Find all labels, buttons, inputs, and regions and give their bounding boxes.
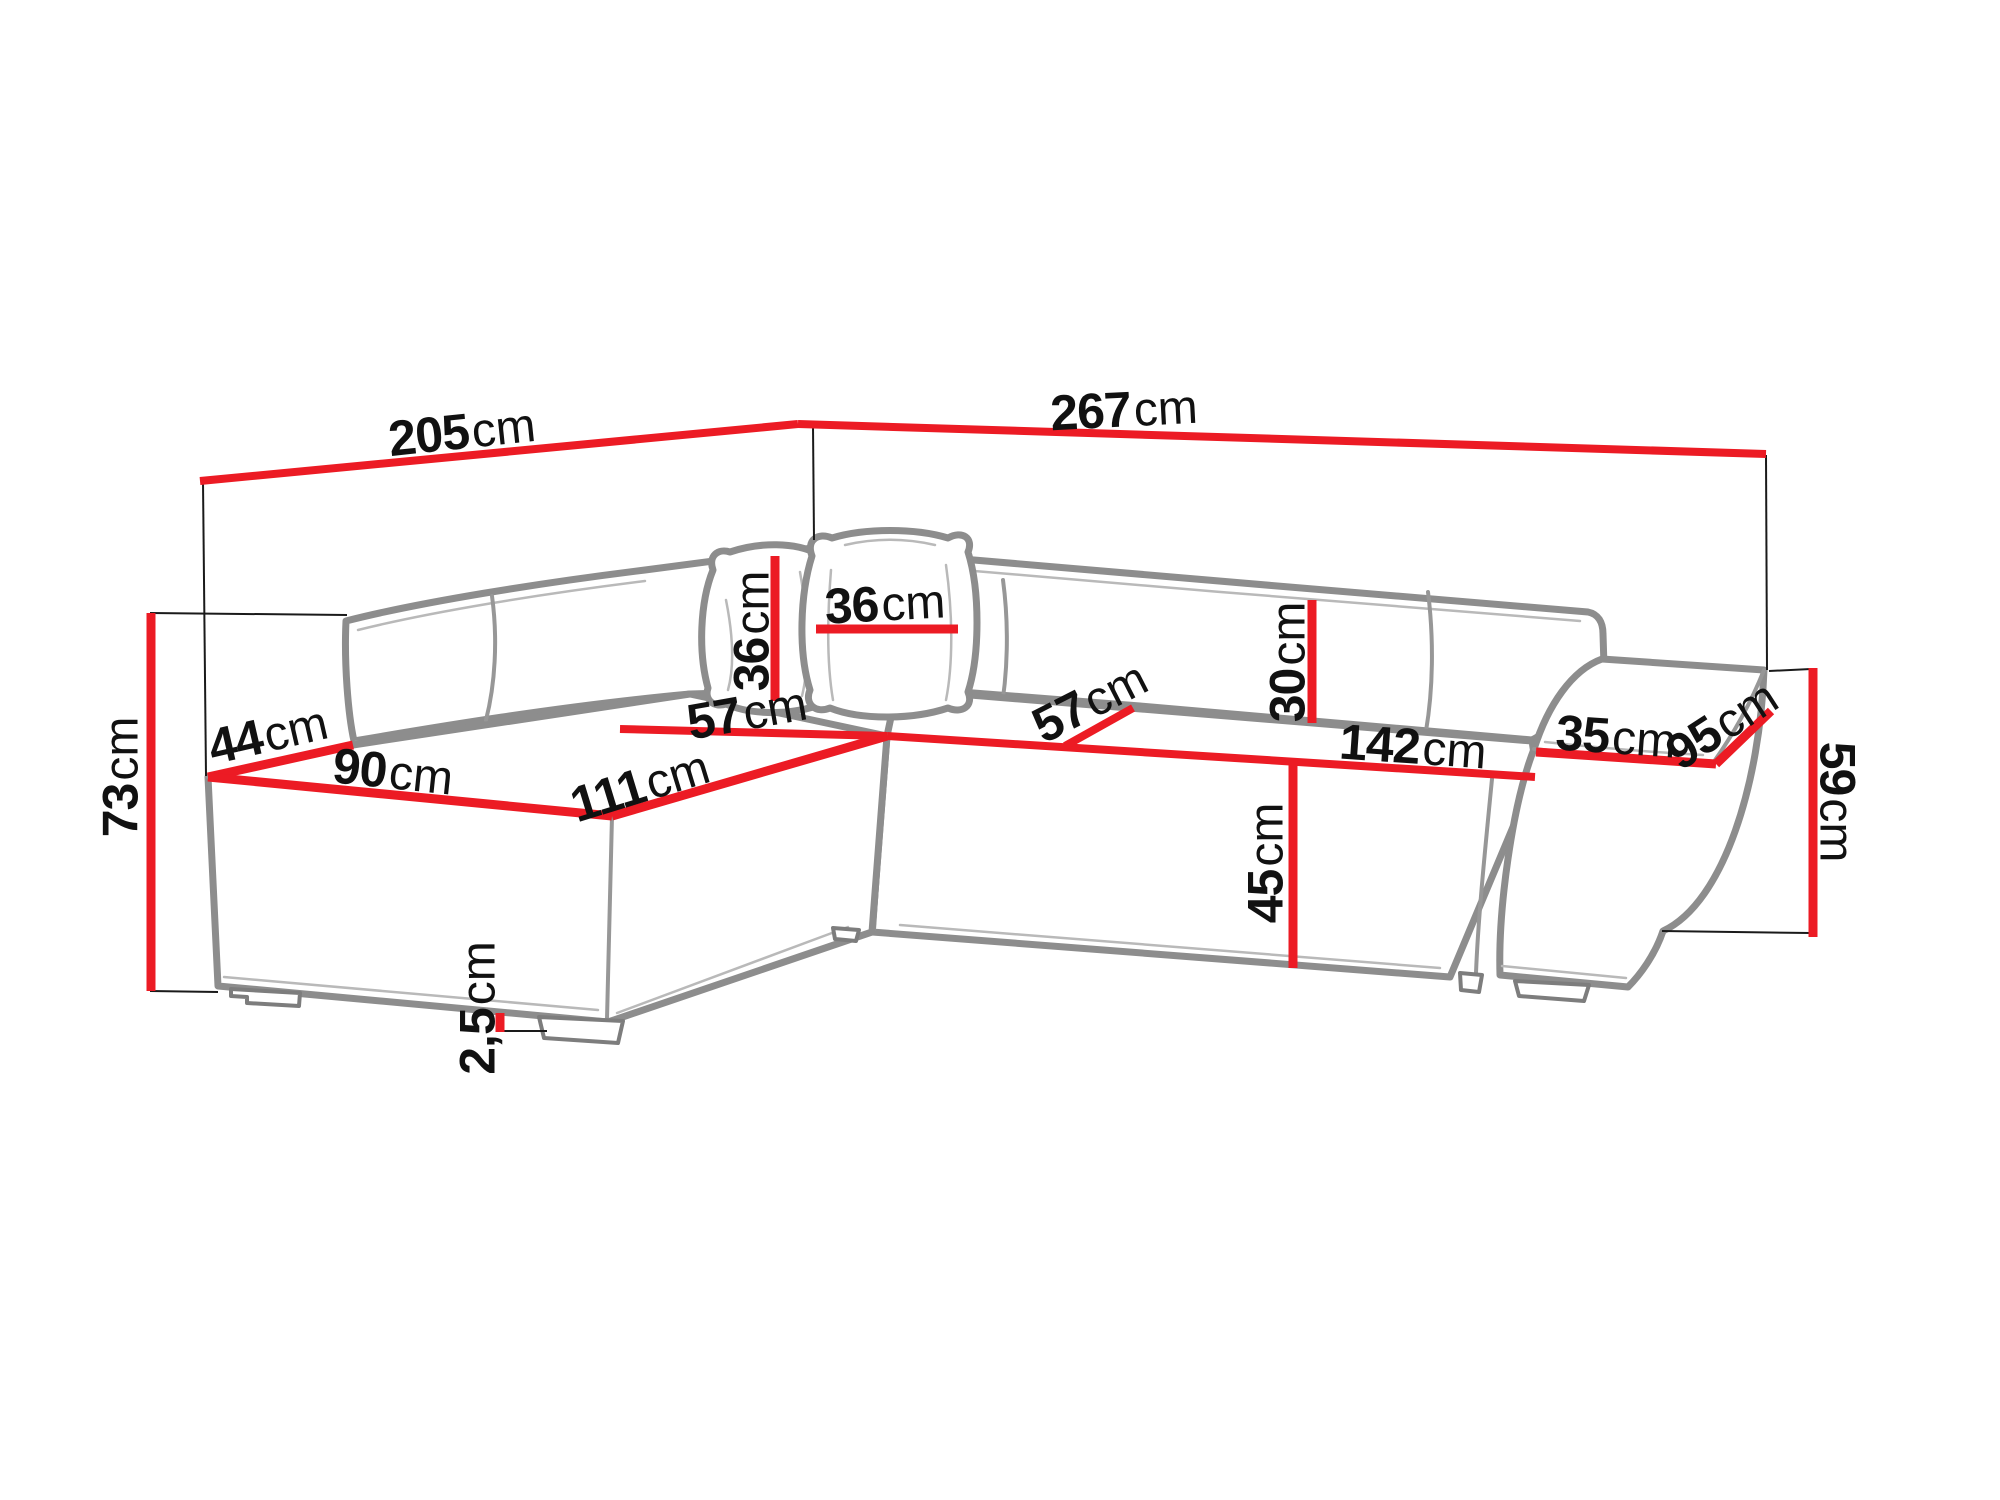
dim-label-pillow-width: 36cm	[823, 575, 946, 632]
dim-label-total-height: 73cm	[96, 717, 147, 838]
dim-label-pouf-height: 59cm	[1812, 742, 1863, 863]
dim-label-back-width-right: 267cm	[1049, 381, 1199, 440]
dimension-diagram: 205cm 267cm 73cm 44cm 90cm 111cm 57cm 36…	[0, 0, 2000, 1500]
dim-label-leg-height: 2,5cm	[453, 941, 504, 1075]
dim-label-pillow-height: 36cm	[727, 571, 778, 692]
dim-label-seat-front-width-right: 142cm	[1338, 716, 1489, 777]
dim-label-backrest-cushion-height: 30cm	[1263, 602, 1314, 723]
dim-line-back-width-right	[798, 424, 1766, 454]
dim-label-seat-height: 45cm	[1241, 803, 1292, 924]
